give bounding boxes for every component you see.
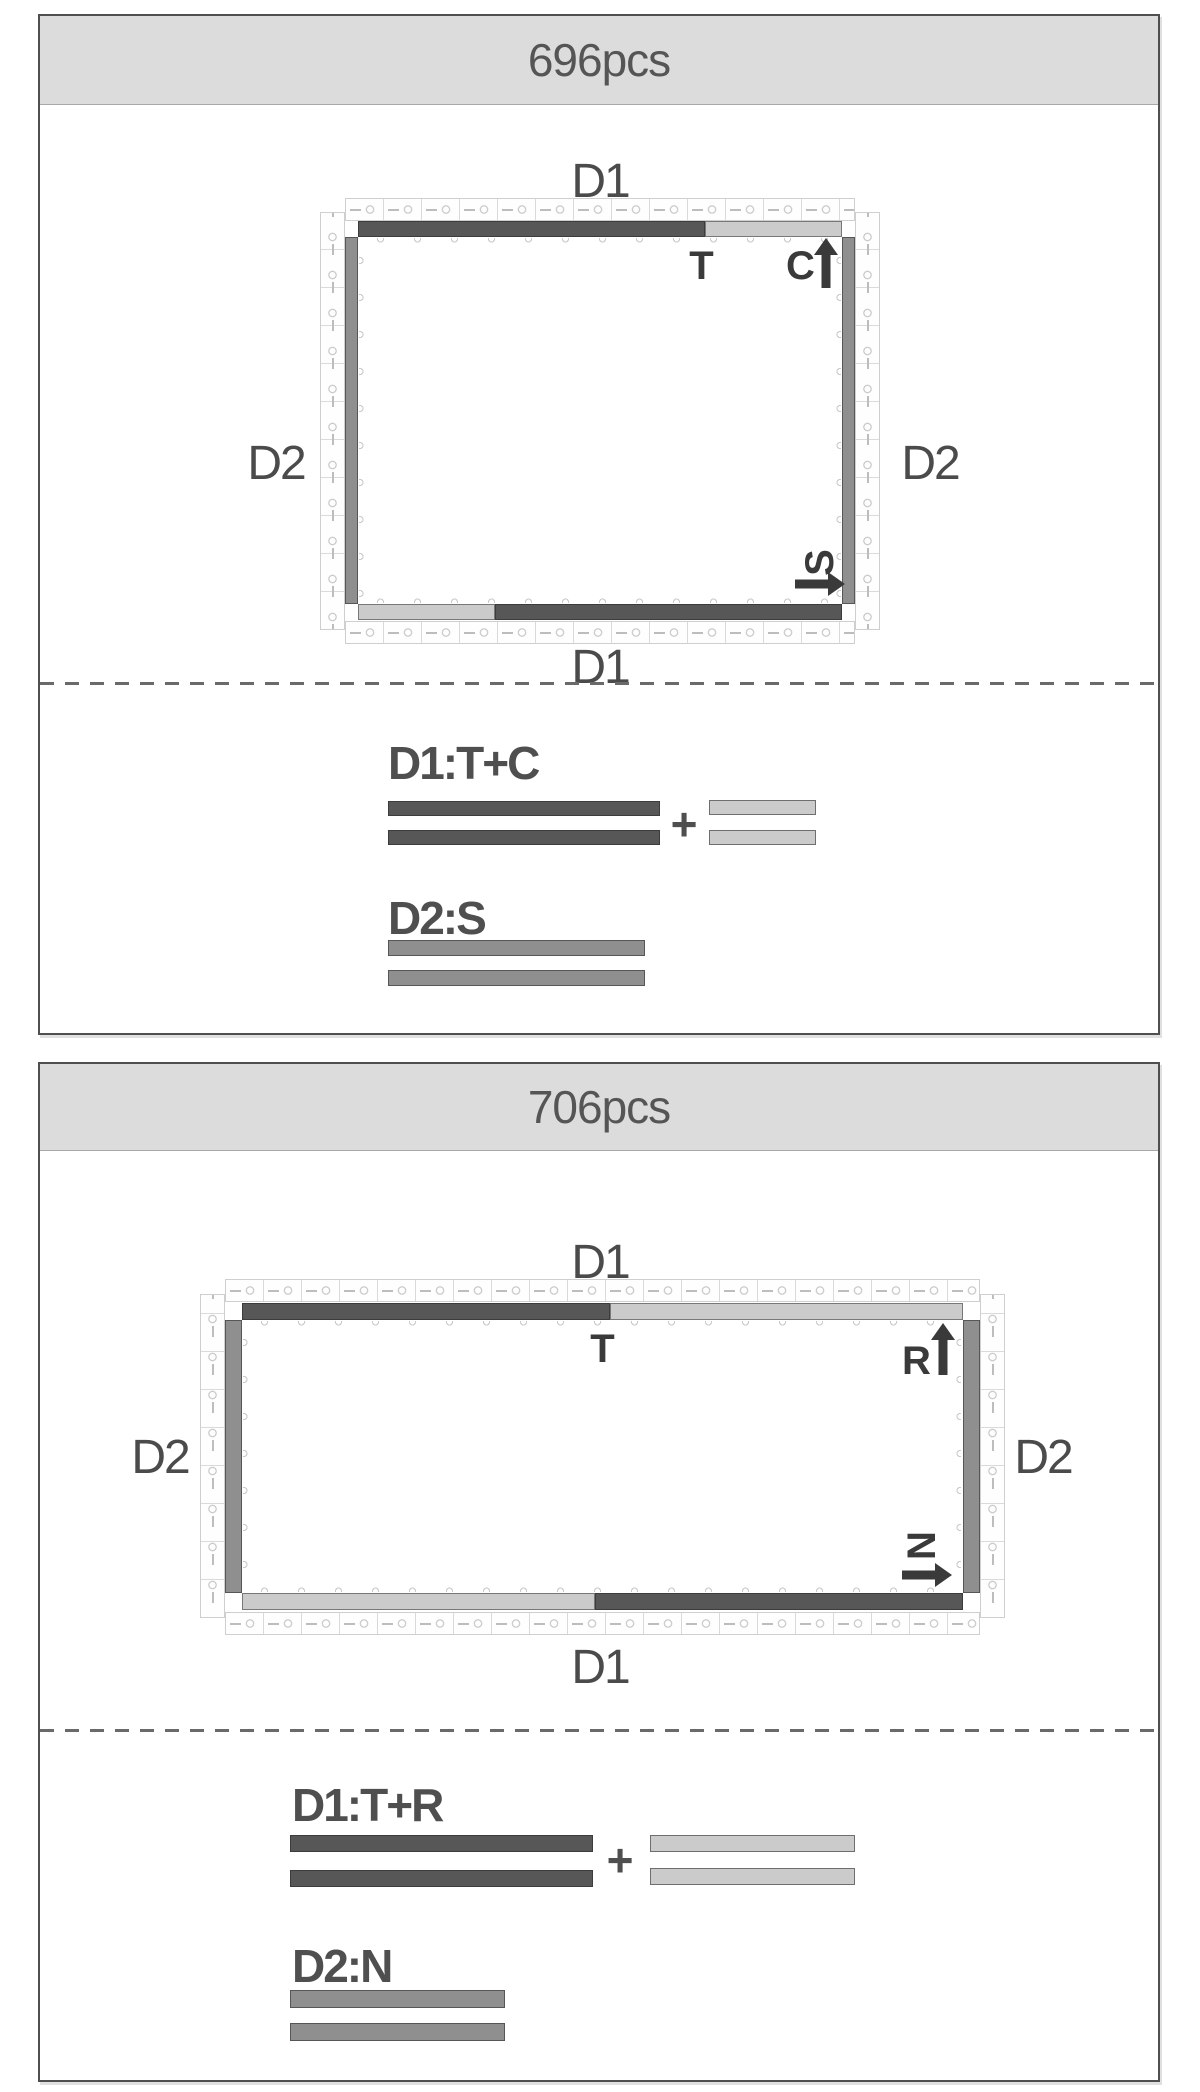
- legend-dark-bar-1a: [388, 801, 660, 816]
- bottom-edge-dark-segment-2: [595, 1593, 963, 1610]
- legend-light-bar-1b: [709, 830, 816, 845]
- separator-2: [40, 1729, 1158, 1732]
- bottom-edge-light-segment-1: [358, 604, 495, 620]
- bottom-edge-light-segment-2: [242, 1593, 595, 1610]
- panel-706-title: 706pcs: [528, 1080, 670, 1134]
- legend-med-bar-1a: [388, 940, 645, 956]
- separator-1: [40, 682, 1158, 685]
- right-edge-bar-2: [963, 1320, 980, 1593]
- top-edge-bar-2: [242, 1303, 963, 1320]
- d2-left-label-2: D2: [105, 1434, 215, 1482]
- top-edge-bar-1: [358, 221, 842, 237]
- legend-d2-heading-1: D2:S: [388, 895, 485, 941]
- legend-med-bar-2b: [290, 2023, 505, 2041]
- top-edge-light-segment-2: [610, 1303, 963, 1320]
- legend-dark-bar-2a: [290, 1835, 593, 1852]
- track-strip-top-2: [225, 1279, 980, 1302]
- left-edge-bar-2: [225, 1320, 242, 1593]
- top-edge-dark-segment-2: [242, 1303, 610, 1320]
- legend-d1-heading-1: D1:T+C: [388, 740, 538, 786]
- marker-T-2: T: [582, 1329, 622, 1369]
- legend-plus-2: +: [599, 1837, 641, 1883]
- left-edge-bar-1: [345, 237, 358, 604]
- panel-696-header: 696pcs: [40, 16, 1158, 105]
- track-strip-bottom-1: [345, 621, 855, 644]
- up-arrow-icon-1: [813, 238, 839, 288]
- legend-light-bar-2b: [650, 1868, 855, 1885]
- legend-dark-bar-1b: [388, 830, 660, 845]
- nubs-bottom-2: [246, 1583, 959, 1592]
- panel-696-title: 696pcs: [528, 33, 670, 87]
- track-strip-right-2: [980, 1294, 1005, 1618]
- right-edge-bar-1: [842, 237, 855, 604]
- legend-d2-heading-2: D2:N: [292, 1943, 391, 1989]
- bottom-edge-dark-segment-1: [495, 604, 842, 620]
- legend-dark-bar-2b: [290, 1870, 593, 1887]
- right-arrow-icon-2: [902, 1562, 952, 1588]
- marker-T-1: T: [681, 246, 721, 286]
- nubs-left-2: [243, 1324, 252, 1588]
- legend-med-bar-2a: [290, 1990, 505, 2008]
- d2-left-label-1: D2: [221, 440, 331, 488]
- legend-light-bar-1a: [709, 800, 816, 815]
- track-strip-left-2: [200, 1294, 225, 1618]
- track-strip-top-1: [345, 198, 855, 221]
- top-edge-dark-segment-1: [358, 221, 705, 237]
- track-strip-right-1: [855, 212, 880, 630]
- up-arrow-icon-2: [930, 1323, 956, 1375]
- legend-med-bar-1b: [388, 970, 645, 986]
- right-arrow-icon-1: [795, 571, 845, 597]
- d1-bottom-label-2: D1: [545, 1644, 655, 1692]
- bottom-edge-bar-2: [242, 1593, 963, 1610]
- d2-right-label-1: D2: [875, 440, 985, 488]
- nubs-bottom-1: [362, 594, 838, 603]
- nubs-top-1: [362, 238, 838, 247]
- legend-d1-heading-2: D1:T+R: [292, 1782, 442, 1828]
- bottom-edge-bar-1: [358, 604, 842, 620]
- page: 696pcs D1 D2 D2 D1 T C S D1:T+C + D2:S: [0, 0, 1200, 2092]
- nubs-left-1: [359, 242, 368, 600]
- track-strip-left-1: [320, 212, 345, 630]
- panel-706-header: 706pcs: [40, 1064, 1158, 1151]
- legend-light-bar-2a: [650, 1835, 855, 1852]
- track-strip-bottom-2: [225, 1612, 980, 1635]
- legend-plus-1: +: [663, 801, 705, 847]
- top-edge-light-segment-1: [705, 221, 842, 237]
